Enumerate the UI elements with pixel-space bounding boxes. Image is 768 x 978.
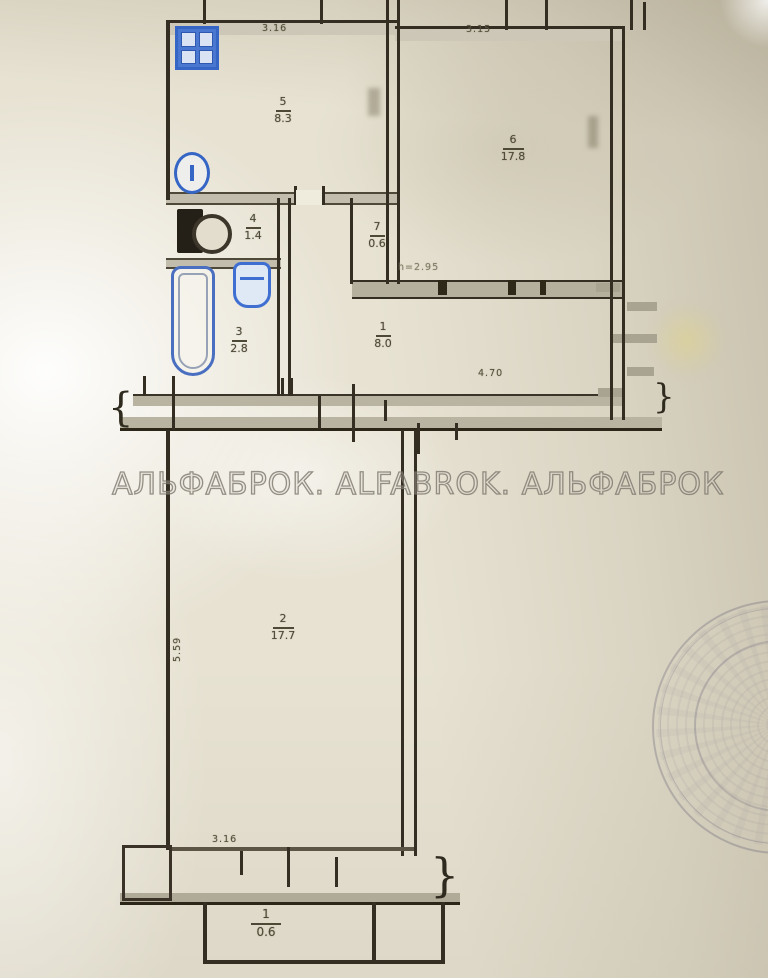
room-area: 0.6 <box>362 238 392 251</box>
room-number: 7 <box>362 221 392 234</box>
room-area: 17.8 <box>496 151 530 164</box>
wall-segment <box>508 280 516 295</box>
closet-left-wall <box>350 198 353 284</box>
wall-stub <box>643 2 646 30</box>
wall-break-brace: { <box>108 388 133 428</box>
wall-hatch <box>596 283 620 292</box>
wall-tick <box>172 376 175 430</box>
toilet-icon <box>233 262 271 308</box>
wall-tick <box>143 376 146 396</box>
gas-stove-icon <box>175 26 219 70</box>
room-number: 4 <box>238 213 268 226</box>
door-jamb <box>322 186 325 205</box>
bath-right-wall <box>288 198 291 396</box>
room-area: 8.3 <box>268 113 298 126</box>
upper-unit-bottom-wall-outer <box>120 417 662 431</box>
room-number: 2 <box>266 613 300 626</box>
kitchen-left-wall <box>166 20 170 200</box>
balcony-right-wall <box>441 902 445 964</box>
wall-tick <box>318 396 321 429</box>
room-label-hall: 1 8.0 <box>368 321 398 350</box>
wall-tick <box>417 423 420 454</box>
wall-pier <box>122 845 172 901</box>
wall-stub <box>505 0 508 30</box>
wall-stub <box>545 0 548 30</box>
balcony-divider-wall <box>372 902 376 964</box>
wall-tick <box>287 847 290 887</box>
stamp-texture <box>656 604 768 846</box>
right-outer-wall <box>610 292 613 420</box>
room-area: 17.7 <box>266 630 300 643</box>
kitchen-door-opening <box>296 190 322 205</box>
bath-right-wall <box>277 198 280 396</box>
room-area: 1.4 <box>238 230 268 243</box>
ceiling-height-note: h=2.95 <box>398 262 439 273</box>
room-area: 0.6 <box>248 926 284 940</box>
wall-stub <box>320 0 323 24</box>
room-number: 3 <box>224 326 254 339</box>
balcony-bottom-wall <box>203 960 445 964</box>
yellow-stain <box>648 302 726 378</box>
room-label-bath: 3 2.8 <box>224 326 254 355</box>
room-label-balcony: 1 0.6 <box>248 908 284 940</box>
wall-tick <box>290 378 293 396</box>
dimension-room2-height: 5.59 <box>172 637 183 662</box>
right-outer-wall <box>622 292 625 420</box>
room-number: 1 <box>368 321 398 334</box>
room-label-room2: 2 17.7 <box>266 613 300 642</box>
living-bottom-wall <box>352 280 623 299</box>
room-number: 5 <box>268 96 298 109</box>
dimension-room2-bottom: 3.16 <box>212 834 237 845</box>
dimension-kitchen-top: 3.16 <box>262 23 287 34</box>
wall-tick <box>281 378 284 396</box>
living-right-wall <box>610 26 613 292</box>
wall-hatch <box>613 334 657 343</box>
wall-tick <box>384 400 387 421</box>
wall-stub <box>203 0 206 24</box>
agency-watermark: АЛЬФАБРОК. ALFABROK. АЛЬФАБРОК <box>112 467 724 502</box>
washing-machine-drum-icon <box>192 214 232 254</box>
dimension-living-top: 3.15 <box>466 24 491 35</box>
room-area: 8.0 <box>368 338 398 351</box>
room-area: 2.8 <box>224 343 254 356</box>
living-right-wall <box>622 26 625 292</box>
wall-hatch <box>627 302 657 311</box>
bathtub-icon <box>171 266 215 376</box>
room-label-kitchen: 5 8.3 <box>268 96 298 125</box>
room-label-laundry: 4 1.4 <box>238 213 268 242</box>
wall-tick <box>352 384 355 442</box>
room2-bottom-wall-inner <box>170 847 414 851</box>
room-number: 1 <box>248 908 284 922</box>
wall-segment <box>438 280 447 295</box>
kitchen-living-wall <box>397 0 400 284</box>
wall-tick <box>335 857 338 887</box>
floor-plan-scan: { } } 5 8.3 6 17.8 4 1.4 7 <box>0 0 768 978</box>
wall-stub <box>630 0 633 30</box>
faint-dimension-mark <box>368 88 380 116</box>
faint-dimension-mark <box>588 116 598 148</box>
wall-tick <box>455 423 458 440</box>
room-label-closet: 7 0.6 <box>362 221 392 250</box>
room-label-living: 6 17.8 <box>496 134 530 163</box>
upper-unit-bottom-wall-inner <box>133 394 623 406</box>
wall-tick <box>240 851 243 875</box>
dimension-hall-width: 4.70 <box>478 368 503 379</box>
wall-segment <box>540 280 546 295</box>
kitchen-bottom-wall <box>166 192 400 205</box>
room-number: 6 <box>496 134 530 147</box>
living-top-wall <box>395 26 625 41</box>
balcony-left-wall <box>203 902 207 964</box>
wall-hatch <box>627 367 654 376</box>
wall-break-brace: } <box>430 852 459 898</box>
sink-icon <box>174 152 210 194</box>
wall-break-brace: } <box>653 380 675 414</box>
